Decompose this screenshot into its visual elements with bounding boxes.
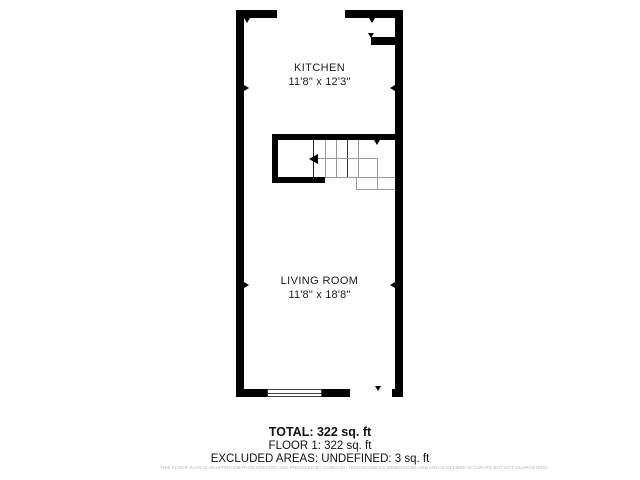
stairs-direction-arrow-icon xyxy=(309,154,318,164)
kitchen-label: KITCHEN xyxy=(244,62,395,74)
floor-plan: KITCHEN 11'8" x 12'3" LIVING ROOM 11'8" … xyxy=(0,0,640,480)
stair-outline xyxy=(325,177,395,178)
wall-stub-top-right xyxy=(371,37,395,45)
wall-left xyxy=(236,10,244,397)
area-summary: TOTAL: 322 sq. ft FLOOR 1: 322 sq. ft EX… xyxy=(0,426,640,475)
marker-tick xyxy=(244,18,250,23)
stair-outline xyxy=(377,158,378,190)
window-symbol xyxy=(267,389,322,397)
wall-right xyxy=(395,10,403,397)
kitchen-dimensions: 11'8" x 12'3" xyxy=(244,76,395,88)
stair-path-line xyxy=(318,158,378,159)
wall-top-right-segment xyxy=(345,10,403,18)
marker-tick xyxy=(375,386,381,391)
floor1-area-text: FLOOR 1: 322 sq. ft xyxy=(0,440,640,452)
marker-tick xyxy=(369,18,375,23)
wall-bottom-right-corner xyxy=(392,389,403,397)
marker-tick xyxy=(374,140,380,145)
total-area-text: TOTAL: 322 sq. ft xyxy=(0,426,640,439)
marker-tick xyxy=(368,33,374,38)
wall-stair-bottom xyxy=(272,177,325,183)
wall-top-left-segment xyxy=(236,10,277,18)
stair-outline xyxy=(356,189,395,190)
living-room-label: LIVING ROOM xyxy=(244,275,395,287)
disclaimer-text: THIS FLOOR PLAN IS AN APPROXIMATION CREA… xyxy=(160,465,480,470)
wall-bottom-left-segment xyxy=(236,389,269,397)
living-room-dimensions: 11'8" x 18'8" xyxy=(244,289,395,301)
window-pane-line xyxy=(268,393,321,394)
wall-bottom-middle-segment xyxy=(321,389,350,397)
excluded-area-text: EXCLUDED AREAS: UNDEFINED: 3 sq. ft xyxy=(0,453,640,465)
